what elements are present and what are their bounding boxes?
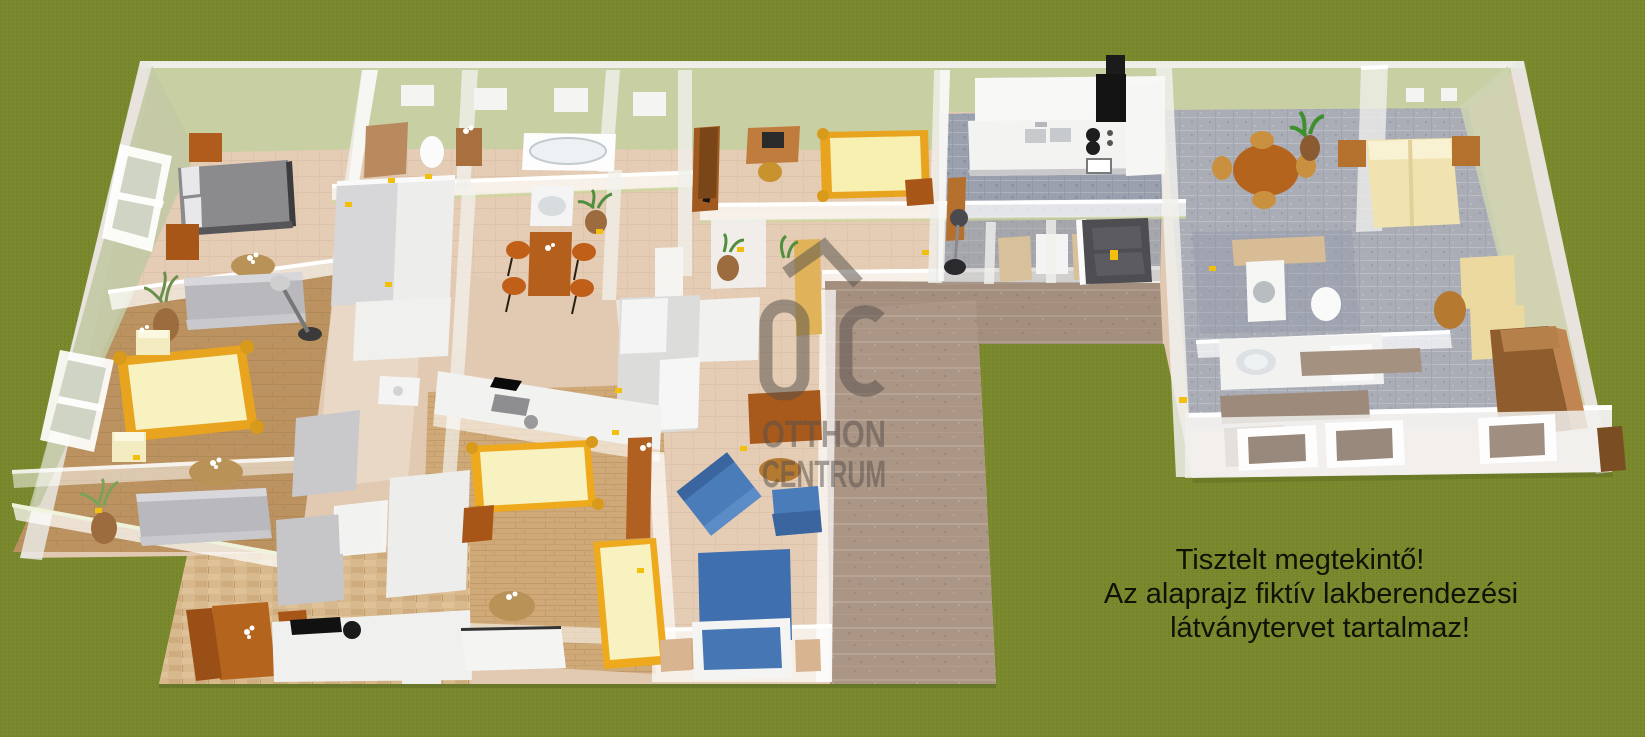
svg-text:látványtervet tartalmaz!: látványtervet tartalmaz! <box>1170 612 1470 644</box>
svg-text:Az alaprajz fiktív lakberendez: Az alaprajz fiktív lakberendezési <box>1104 578 1518 610</box>
svg-text:Tisztelt megtekintő!: Tisztelt megtekintő! <box>1176 544 1425 576</box>
svg-text:CENTRUM: CENTRUM <box>762 454 886 496</box>
svg-text:OTTHON: OTTHON <box>762 414 886 456</box>
